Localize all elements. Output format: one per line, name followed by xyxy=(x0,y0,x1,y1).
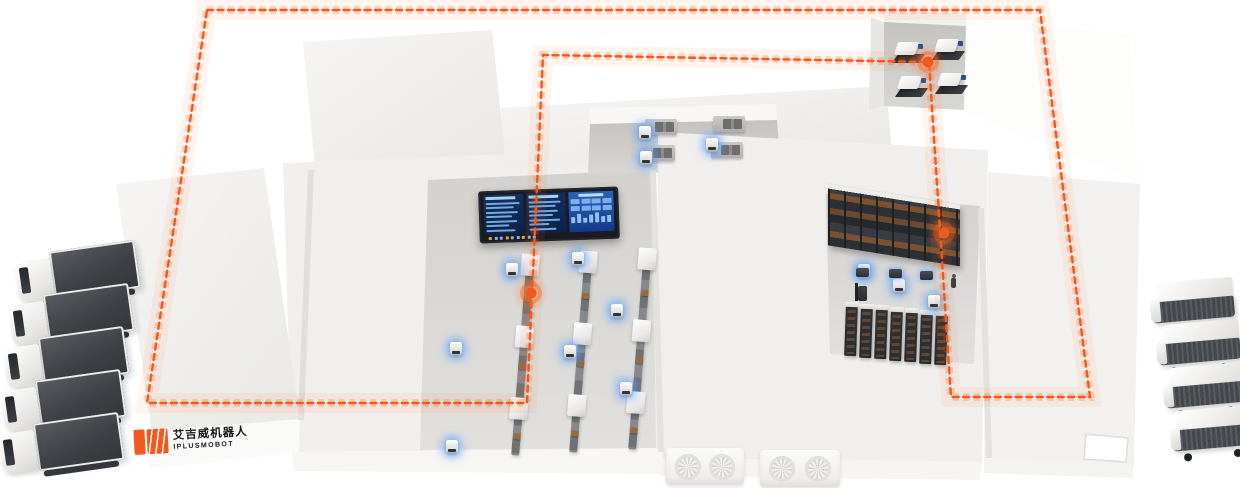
dashboard-data-row xyxy=(528,205,555,208)
dock-machine-plate xyxy=(934,39,959,52)
agv-robot xyxy=(928,295,940,309)
dashboard-bar xyxy=(601,216,605,222)
workstation xyxy=(713,116,745,132)
dock-machine xyxy=(893,42,923,66)
dashboard-footer-ticks xyxy=(489,235,536,240)
conveyor-belt xyxy=(628,252,652,450)
monitoring-dashboard-screen xyxy=(478,187,620,244)
conveyor-machine xyxy=(573,322,593,345)
conveyor-cargo-box xyxy=(519,363,526,370)
agv-robot xyxy=(893,279,905,293)
conveyor-cargo-box xyxy=(577,360,584,367)
hvac-unit xyxy=(666,448,744,485)
dashboard-data-row xyxy=(529,227,557,230)
fan-icon xyxy=(675,454,701,480)
dock-machine xyxy=(936,73,966,97)
hvac-unit xyxy=(760,450,840,487)
agv-robot xyxy=(640,151,652,165)
dashboard-bar xyxy=(577,214,581,223)
dashboard-data-row xyxy=(486,211,518,214)
dashboard-table-mid xyxy=(526,192,567,233)
smart-factory-scene: 艾吉威机器人 IPLUSMOBOT xyxy=(0,0,1240,488)
van-bump xyxy=(1169,427,1181,451)
van-w2 xyxy=(1234,449,1240,458)
dashboard-footer-tick xyxy=(533,235,536,238)
dock-machine-sensor xyxy=(921,78,926,83)
dashboard-footer-tick xyxy=(516,236,519,239)
dashboard-footer-tick xyxy=(527,236,530,239)
rack-row xyxy=(919,313,933,363)
conveyor-cargo-box xyxy=(571,430,578,437)
dashboard-data-row xyxy=(529,214,553,217)
dashboard-data-row xyxy=(529,223,550,226)
rack-row xyxy=(904,312,918,362)
logo-bar-icon xyxy=(133,429,145,455)
conveyor-cargo-box xyxy=(636,357,643,364)
conveyor-machine xyxy=(520,253,540,276)
dock-machine-sensor xyxy=(961,75,966,80)
dashboard-data-row xyxy=(486,202,520,205)
dock-machine-plate xyxy=(937,73,962,86)
dashboard-header-row xyxy=(528,195,558,199)
rack-row xyxy=(934,315,948,365)
dashboard-kpi-cell xyxy=(581,199,590,204)
rack-row xyxy=(844,306,858,356)
dashboard-header-row xyxy=(485,196,515,200)
conveyor-belt xyxy=(511,258,535,456)
dashboard-data-row xyxy=(486,206,514,209)
dashboard-footer-tick xyxy=(500,237,503,240)
rack-row xyxy=(889,310,903,360)
fan-icon xyxy=(709,454,735,480)
dashboard-kpi-cell xyxy=(571,205,580,210)
dock-machine-sensor xyxy=(918,44,923,49)
dock-machine xyxy=(933,39,963,63)
dashboard-kpi-cell xyxy=(592,205,601,210)
dashboard-footer-tick xyxy=(522,236,525,239)
dashboard-footer-tick xyxy=(511,236,514,239)
brand-text: 艾吉威机器人 IPLUSMOBOT xyxy=(172,426,248,450)
agv-robot xyxy=(446,440,458,454)
forklift xyxy=(858,286,867,301)
dashboard-bar xyxy=(583,218,587,223)
dashboard-bar xyxy=(571,217,575,223)
van-w1 xyxy=(1184,453,1193,462)
dock-machine-plate xyxy=(897,76,922,89)
conveyor-cargo-box xyxy=(582,293,589,300)
dock-machine-rail xyxy=(895,88,928,97)
van-bump xyxy=(1149,299,1161,323)
dashboard-stats-panel xyxy=(568,191,614,233)
details-layer xyxy=(0,0,1240,488)
conveyor-machine xyxy=(632,319,652,342)
conveyor-machine xyxy=(637,247,657,270)
conveyor-line xyxy=(623,247,657,453)
conveyor-cargo-box xyxy=(630,427,637,434)
rack-row xyxy=(874,309,888,359)
dock-machine-plate xyxy=(894,42,919,55)
dashboard-kpi-cell xyxy=(602,198,611,203)
conveyor-cargo-box xyxy=(524,296,531,303)
dashboard-data-row xyxy=(528,209,558,212)
dock-machine-rail xyxy=(932,51,965,60)
dashboard-bar xyxy=(595,212,599,222)
agv-robot xyxy=(620,382,632,396)
dashboard-kpi-cell xyxy=(571,199,580,204)
agv-robot-docked xyxy=(889,269,902,278)
van-bump xyxy=(1162,384,1174,408)
dashboard-kpi-cell xyxy=(602,204,611,209)
dock-machine-rail xyxy=(935,85,968,94)
rack-row xyxy=(859,307,873,357)
agv-robot xyxy=(639,126,651,140)
conveyor-cargo-box xyxy=(513,433,520,440)
conveyor-machine xyxy=(567,394,587,417)
dashboard-data-row xyxy=(528,200,560,203)
dock-machine xyxy=(896,76,926,100)
dashboard-kpi-grid xyxy=(571,198,612,211)
dashboard-data-row xyxy=(486,220,517,223)
agv-robot-docked xyxy=(920,271,933,280)
dashboard-footer-tick xyxy=(489,237,492,240)
dashboard-footer-tick xyxy=(494,237,497,240)
dashboard-kpi-cell xyxy=(581,205,590,210)
fan-icon xyxy=(769,456,795,482)
dashboard-bar-chart xyxy=(571,211,612,222)
dashboard-bar xyxy=(589,214,593,222)
dashboard-bar xyxy=(607,214,611,221)
brand-logo-icon xyxy=(133,428,168,455)
agv-robot xyxy=(706,138,718,152)
dashboard-footer-tick xyxy=(505,236,508,239)
dashboard-data-row xyxy=(486,229,515,232)
storage-rack-long xyxy=(828,184,960,267)
agv-robot xyxy=(611,304,623,318)
agv-robot xyxy=(450,342,462,356)
fan-icon xyxy=(805,456,831,482)
delivery-van xyxy=(1168,404,1240,459)
worker-person xyxy=(951,278,956,288)
dashboard-data-row xyxy=(529,218,560,221)
conveyor-machine xyxy=(509,397,529,420)
dock-machine-rail xyxy=(892,54,925,63)
dashboard-title-bar xyxy=(579,193,604,197)
logo-stripes-icon xyxy=(146,428,168,454)
agv-robot xyxy=(564,345,576,359)
conveyor-machine xyxy=(515,325,535,348)
agv-robot xyxy=(506,263,518,277)
dashboard-data-row xyxy=(486,215,512,218)
agv-robot xyxy=(572,252,584,266)
dashboard-table-left xyxy=(483,194,524,235)
dashboard-kpi-cell xyxy=(592,198,601,203)
conveyor-cargo-box xyxy=(641,290,648,297)
conveyor-line xyxy=(506,253,540,459)
dock-machine-sensor xyxy=(958,41,963,46)
dashboard-data-row xyxy=(486,224,509,227)
agv-robot-docked xyxy=(856,268,869,277)
van-bump xyxy=(1155,341,1167,365)
